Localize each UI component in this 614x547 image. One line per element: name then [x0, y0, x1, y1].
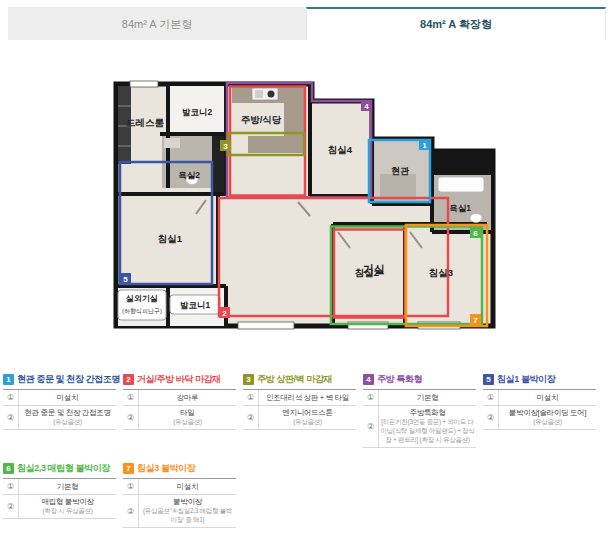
- svg-text:3: 3: [223, 142, 228, 151]
- legend-item-6: 6 침실2,3 매립형 붙박이장 ① 기본형 ② 매립형 붙박이장(확장 시 유…: [3, 462, 116, 519]
- svg-text:4: 4: [364, 102, 369, 111]
- legend-badge-2: 2: [123, 374, 134, 385]
- room-label-outdoor-unit: 실외기실: [125, 294, 158, 303]
- sink-icon: [255, 90, 263, 98]
- legend-badge-5: 5: [483, 374, 494, 385]
- burner-icon: [268, 91, 275, 98]
- legend-row: ② 타일(유상옵션): [123, 406, 236, 430]
- legend-badge-1: 1: [3, 374, 14, 385]
- entrance-step: [380, 174, 416, 200]
- legend-item-2-header: 2 거실/주방 바닥 마감재: [123, 373, 236, 390]
- plan-badge-4: 4: [361, 100, 372, 111]
- legend-title-7: 침실3 붙박이장: [137, 462, 195, 475]
- room-label-balcony2: 발코니2: [182, 107, 213, 117]
- legend-row: ② 주방특화형[히든키친(3연동 중문) + 와이드 다이닝(식탁 일체형 아일…: [363, 406, 476, 448]
- room-label-kitchen: 주방/식당: [241, 114, 282, 125]
- room-label-bed4: 침실4: [328, 144, 353, 155]
- plan-badge-5: 5: [120, 273, 131, 284]
- room-label-entrance: 현관: [391, 166, 409, 176]
- legend-row: ② 현관 중문 및 천장 간접조명(유상옵션): [3, 406, 116, 430]
- legend-item-7-header: 7 침실3 붙박이장: [123, 462, 236, 479]
- plan-badge-1: 1: [419, 139, 430, 150]
- room-label-bath1: 욕실1: [449, 203, 471, 213]
- legend-badge-6: 6: [3, 463, 14, 474]
- legend-row: ① 미설치: [123, 479, 236, 495]
- legend-item-4-header: 4 주방 특화형: [363, 373, 476, 390]
- plan-badge-7: 7: [470, 314, 481, 325]
- legend-title-4: 주방 특화형: [377, 373, 422, 386]
- legend-item-3-header: 3 주방 상판/벽 마감재: [243, 373, 356, 390]
- plan-badge-2: 2: [219, 307, 230, 318]
- legend-badge-4: 4: [363, 374, 374, 385]
- legend-item-2: 2 거실/주방 바닥 마감재 ① 강마루 ② 타일(유상옵션): [123, 373, 236, 430]
- room-label-bath2: 욕실2: [178, 170, 200, 180]
- legend-title-1: 현관 중문 및 천장 간접조명: [17, 373, 120, 386]
- legend-item-7: 7 침실3 붙박이장 ① 미설치 ② 붙박이장(유상옵션 '⑥침실2,3 매립형…: [123, 462, 236, 528]
- legend-row: ① 인조대리석 상판 + 벽 타일: [243, 390, 356, 406]
- legend-row: ① 기본형: [363, 390, 476, 406]
- legend: 1 현관 중문 및 천장 간접조명 ① 미설치 ② 현관 중문 및 천장 간접조…: [3, 373, 596, 528]
- legend-row: ① 기본형: [3, 479, 116, 495]
- legend-row: ② 붙박이장(유상옵션 '⑥침실2,3 매립형 붙박이장' 중 택1): [123, 495, 236, 528]
- svg-text:2: 2: [222, 309, 227, 318]
- tab-bar: 84m² A 기본형 84m² A 확장형: [8, 7, 606, 40]
- legend-item-1-header: 1 현관 중문 및 천장 간접조명: [3, 373, 116, 390]
- svg-text:5: 5: [123, 275, 128, 284]
- plan-badge-6: 6: [470, 227, 481, 238]
- room-label-bed2: 침실2: [355, 267, 379, 278]
- legend-row: ② 붙박이장[슬라이딩 도어](유상옵션): [483, 406, 596, 430]
- legend-item-4: 4 주방 특화형 ① 기본형 ② 주방특화형[히든키친(3연동 중문) + 와이…: [363, 373, 476, 448]
- room-label-outdoor-unit-sub: (하향식피난구): [122, 308, 162, 314]
- floor-plan: 1 2 3 4 5 6 7 드레스룸 발코니2 주방/식당 침실4 현관 욕실1…: [100, 74, 498, 354]
- room-label-balcony1: 발코니1: [180, 300, 211, 310]
- svg-text:1: 1: [422, 141, 427, 150]
- room-label-bed3: 침실3: [429, 267, 453, 278]
- legend-title-2: 거실/주방 바닥 마감재: [137, 373, 221, 386]
- bath1-tub-icon: [438, 177, 484, 192]
- plan-badge-3: 3: [220, 140, 231, 151]
- room-label-dressroom: 드레스룸: [126, 117, 165, 128]
- room-label-bed1: 침실1: [158, 233, 183, 244]
- bath2-sink-icon: [164, 138, 180, 148]
- legend-item-5: 5 침실1 붙박이장 ① 미설치 ② 붙박이장[슬라이딩 도어](유상옵션): [483, 373, 596, 430]
- legend-badge-7: 7: [123, 463, 134, 474]
- legend-row: ② 매립형 붙박이장(확장 시 유상옵션): [3, 495, 116, 519]
- legend-item-6-header: 6 침실2,3 매립형 붙박이장: [3, 462, 116, 479]
- legend-row: ① 미설치: [483, 390, 596, 406]
- legend-title-6: 침실2,3 매립형 붙박이장: [17, 462, 110, 475]
- svg-text:6: 6: [473, 229, 478, 238]
- tab-84a-extended[interactable]: 84m² A 확장형: [306, 7, 606, 40]
- legend-row: ① 미설치: [3, 390, 116, 406]
- legend-item-1: 1 현관 중문 및 천장 간접조명 ① 미설치 ② 현관 중문 및 천장 간접조…: [3, 373, 116, 430]
- legend-title-5: 침실1 붙박이장: [497, 373, 555, 386]
- bath1-toilet-icon: [470, 214, 482, 223]
- tab-84a-basic[interactable]: 84m² A 기본형: [8, 7, 306, 40]
- svg-text:7: 7: [473, 316, 478, 325]
- legend-item-3: 3 주방 상판/벽 마감재 ① 인조대리석 상판 + 벽 타일 ② 엔지니어드스…: [243, 373, 356, 430]
- wall-block-above-bath1: [432, 153, 491, 175]
- legend-item-5-header: 5 침실1 붙박이장: [483, 373, 596, 390]
- legend-badge-3: 3: [243, 374, 254, 385]
- legend-row: ① 강마루: [123, 390, 236, 406]
- floor-plan-svg: 1 2 3 4 5 6 7 드레스룸 발코니2 주방/식당 침실4 현관 욕실1…: [100, 74, 498, 354]
- legend-row: ② 엔지니어드스톤(유상옵션): [243, 406, 356, 430]
- legend-title-3: 주방 상판/벽 마감재: [257, 373, 332, 386]
